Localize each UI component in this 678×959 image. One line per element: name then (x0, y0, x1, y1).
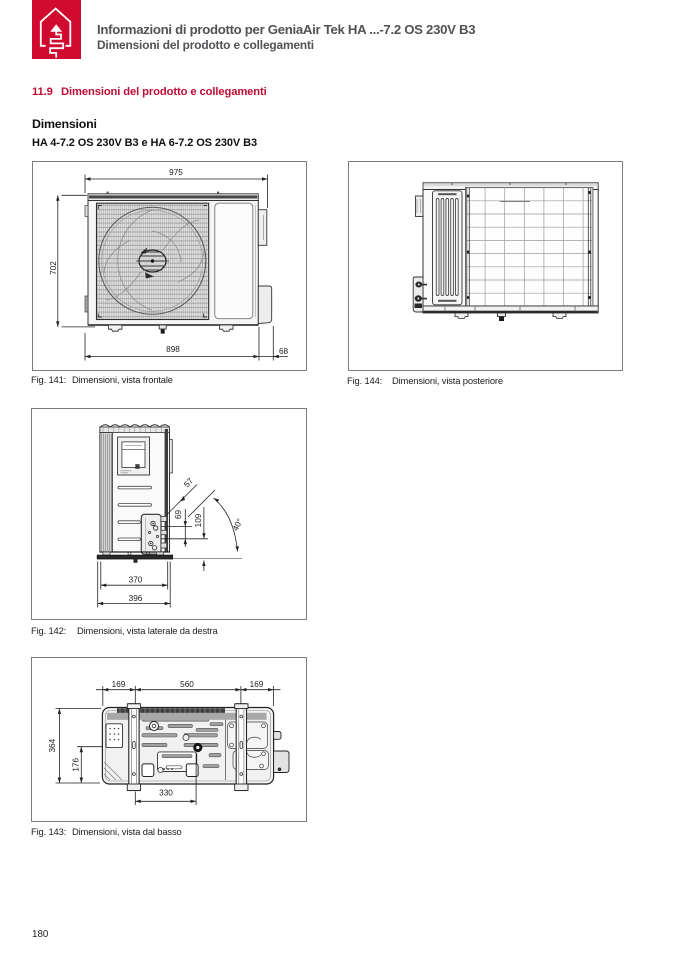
svg-text:898: 898 (166, 345, 180, 354)
svg-text:176: 176 (72, 758, 81, 772)
svg-text:169: 169 (112, 680, 126, 689)
svg-text:396: 396 (129, 594, 143, 603)
svg-text:68: 68 (279, 347, 289, 356)
svg-text:40°: 40° (231, 517, 245, 532)
svg-text:109: 109 (194, 513, 203, 527)
svg-text:364: 364 (48, 738, 57, 752)
svg-text:330: 330 (159, 789, 173, 798)
svg-text:975: 975 (169, 168, 183, 177)
svg-text:169: 169 (250, 680, 264, 689)
svg-text:560: 560 (180, 680, 194, 689)
svg-text:57: 57 (182, 476, 195, 489)
svg-text:702: 702 (49, 261, 58, 275)
svg-text:370: 370 (129, 576, 143, 585)
svg-text:69: 69 (174, 510, 183, 520)
